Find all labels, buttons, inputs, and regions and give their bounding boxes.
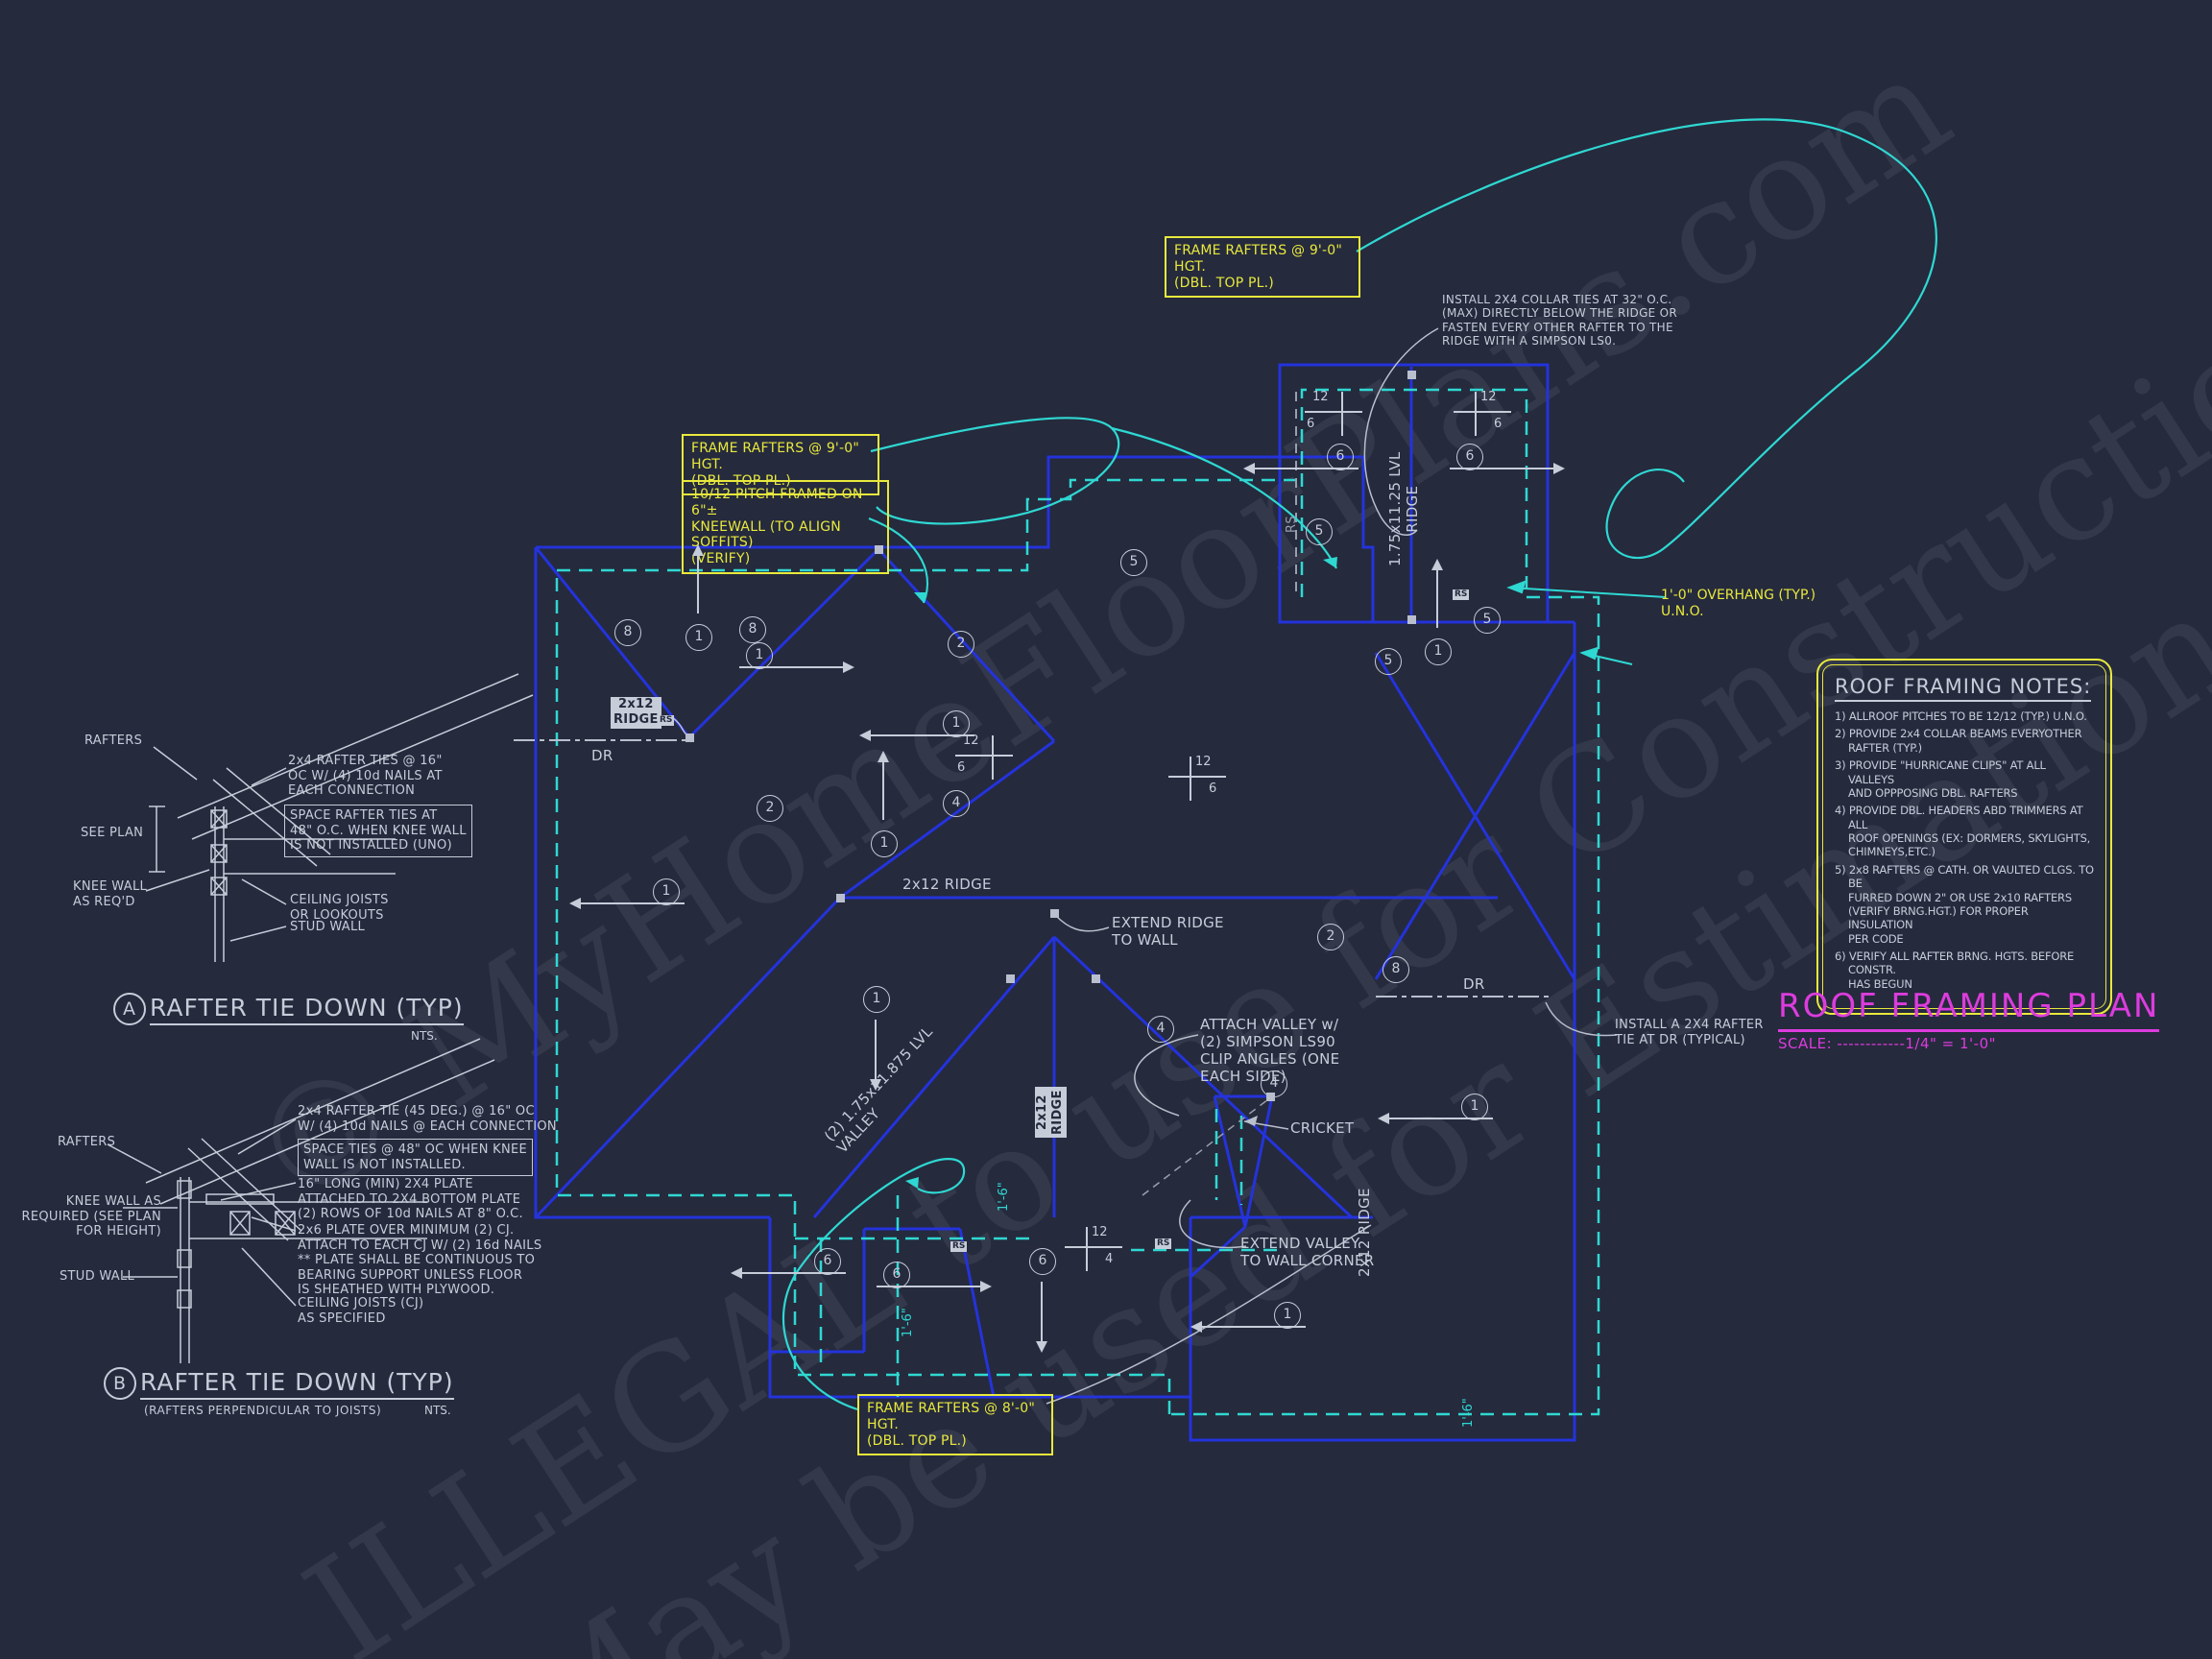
circled-number-marker: 8 <box>1382 956 1409 983</box>
left-arrow-icon <box>1190 1321 1202 1333</box>
roof-pitch-marker: 126 <box>1454 392 1513 440</box>
circled-number-marker: 5 <box>1474 607 1501 634</box>
roof-pitch-marker: 124 <box>1065 1227 1124 1275</box>
left-arrow-icon <box>731 1267 742 1279</box>
up-arrow-icon <box>1431 559 1443 570</box>
circled-number-marker: 1 <box>1425 638 1452 665</box>
marker-arrow-shaft <box>739 666 843 668</box>
circled-number-marker: 1 <box>685 624 712 651</box>
marker-arrow-shaft <box>1202 1326 1306 1328</box>
right-arrow-icon <box>980 1281 992 1292</box>
dimension-label: 1'-6" <box>1461 1398 1476 1428</box>
left-arrow-icon <box>1243 463 1255 474</box>
left-arrow-icon <box>569 898 581 909</box>
circled-number-marker: 1 <box>1461 1094 1488 1120</box>
circled-number-marker: 4 <box>1147 1016 1174 1043</box>
marker-arrow-shaft <box>1255 468 1358 469</box>
marker-arrow-shaft <box>1436 568 1438 628</box>
roof-pitch-marker: 126 <box>955 735 1015 783</box>
rs-tag: RS <box>1155 1238 1171 1249</box>
down-arrow-icon <box>870 1079 881 1091</box>
circled-number-marker: 2 <box>948 631 974 658</box>
circled-number-marker: 6 <box>814 1248 841 1275</box>
circled-number-marker: 6 <box>1029 1248 1056 1275</box>
rs-tag: RS <box>1453 589 1469 600</box>
dimension-label: 1'-6" <box>901 1308 915 1337</box>
circled-number-marker: 8 <box>614 619 641 646</box>
roof-pitch-marker: 126 <box>1168 757 1228 805</box>
connection-node <box>685 733 694 742</box>
connection-node <box>1006 974 1015 983</box>
connection-node <box>875 545 883 554</box>
circled-number-marker: 1 <box>863 986 890 1013</box>
marker-arrow-shaft <box>877 1286 980 1287</box>
marker-arrow-shaft <box>1041 1282 1043 1341</box>
circled-number-marker: 6 <box>1456 444 1483 470</box>
right-arrow-icon <box>843 661 854 673</box>
circled-number-marker: 8 <box>739 616 766 643</box>
circled-number-marker: 5 <box>1375 648 1402 675</box>
circled-number-marker: 5 <box>1120 549 1147 576</box>
marker-arrow-shaft <box>742 1272 846 1274</box>
down-arrow-icon <box>1036 1341 1047 1353</box>
marker-arrow-shaft <box>1450 468 1553 469</box>
circled-number-marker: 6 <box>1327 444 1354 470</box>
circled-number-marker: 4 <box>943 790 970 817</box>
connection-node <box>1407 371 1416 379</box>
connection-node <box>1266 1093 1275 1101</box>
rs-tag: RS <box>950 1241 967 1252</box>
circled-number-marker: 1 <box>653 878 680 905</box>
circled-number-marker: 1 <box>1274 1302 1301 1329</box>
roof-framing-plan-sheet: © MyHomeFloorPlans.com ILLEGAL to use fo… <box>0 0 2212 1659</box>
connection-node <box>836 894 845 902</box>
up-arrow-icon <box>692 544 704 556</box>
circled-number-marker: 1 <box>871 830 898 857</box>
connection-node <box>1092 974 1100 983</box>
marker-arrow-shaft <box>697 554 699 613</box>
dimension-label: 1'-6" <box>997 1182 1011 1212</box>
up-arrow-icon <box>878 751 889 762</box>
connection-node <box>1407 615 1416 624</box>
circled-number-marker: 2 <box>1317 924 1344 950</box>
roof-pitch-marker: 126 <box>1305 392 1364 440</box>
rs-tag: RS <box>658 715 674 726</box>
marker-arrow-shaft <box>875 1020 877 1079</box>
circled-number-marker: 5 <box>1306 518 1333 545</box>
connection-node <box>1050 909 1059 918</box>
circled-number-marker: 2 <box>757 795 783 822</box>
left-arrow-icon <box>859 730 871 741</box>
marker-arrow-shaft <box>882 760 884 820</box>
marker-arrow-shaft <box>1389 1118 1493 1119</box>
plan-markers-layer: 8181214211144166551566612851261261261261… <box>0 0 2212 1659</box>
right-arrow-icon <box>1553 463 1565 474</box>
circled-number-marker: 1 <box>746 642 773 669</box>
marker-arrow-shaft <box>581 902 685 904</box>
circled-number-marker: 6 <box>883 1262 910 1288</box>
left-arrow-icon <box>1378 1113 1389 1124</box>
